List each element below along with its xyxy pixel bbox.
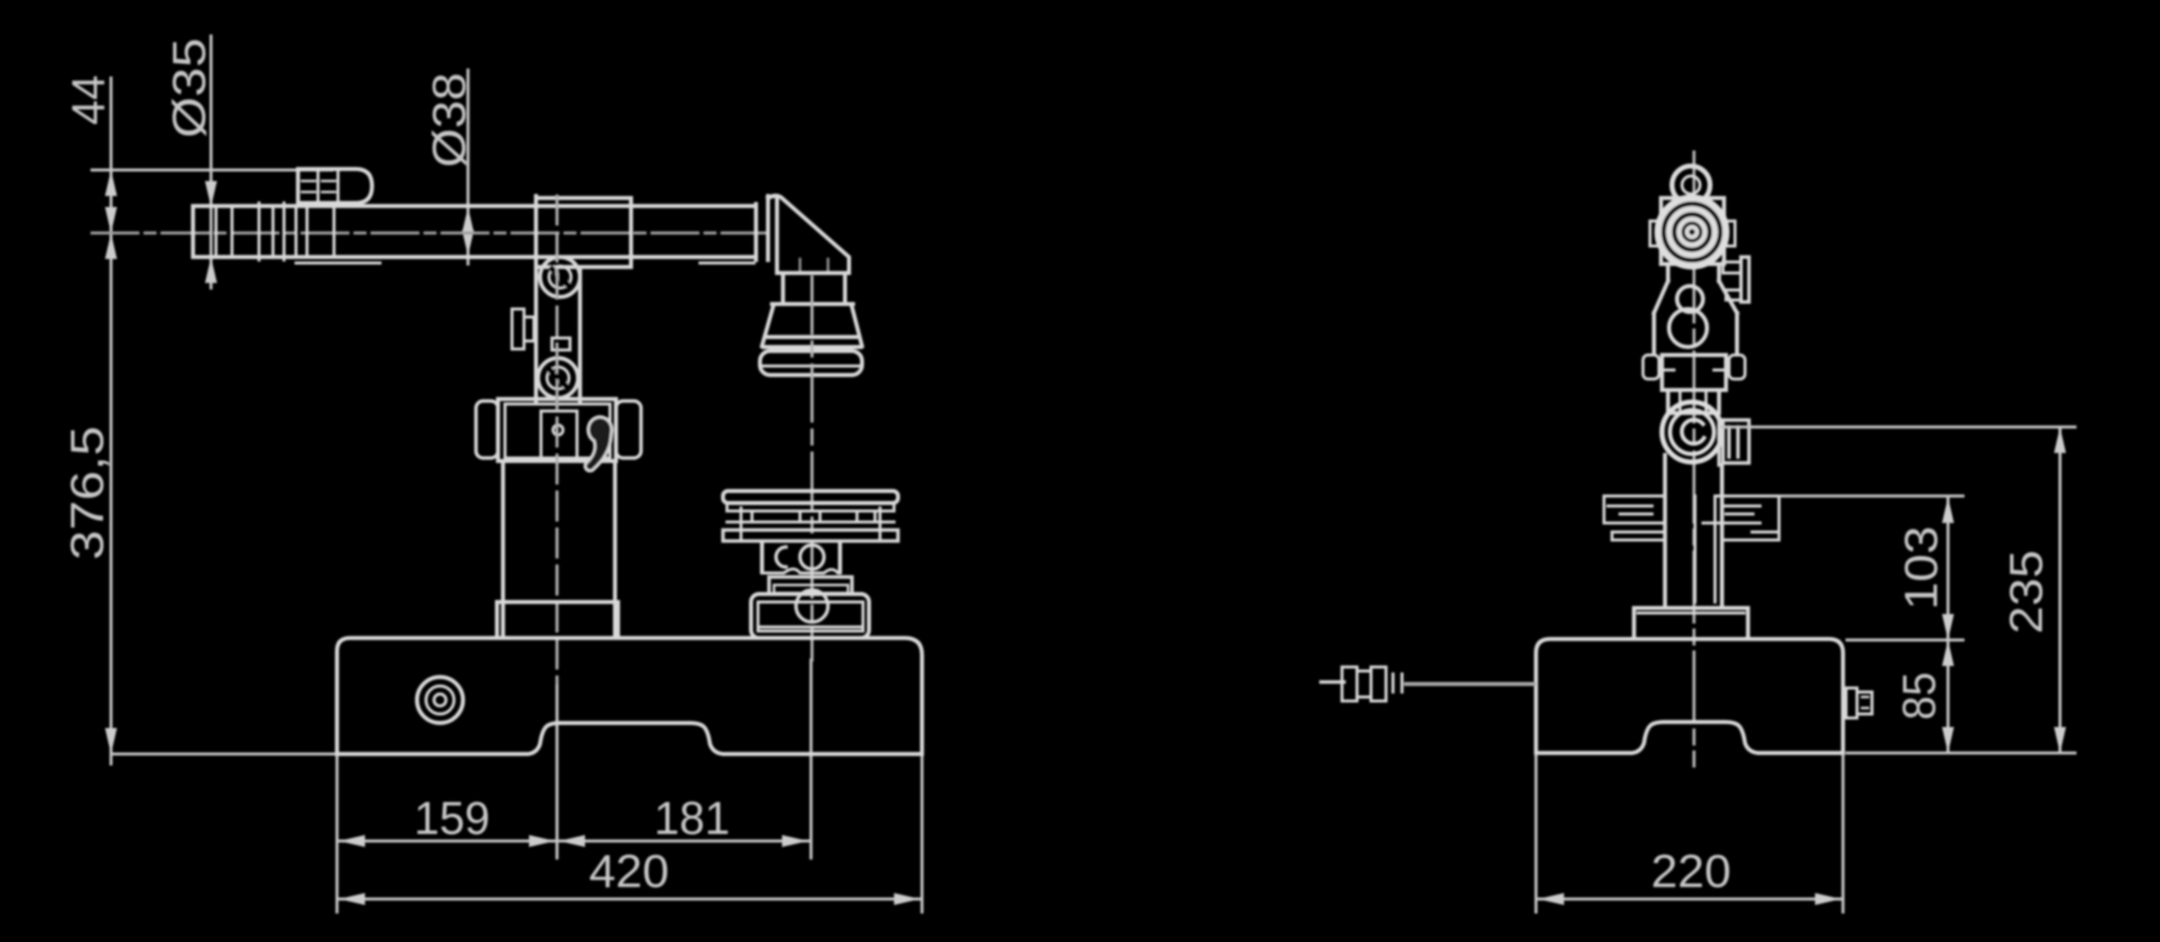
svg-text:376,5: 376,5 [61, 426, 113, 560]
svg-text:85: 85 [1893, 672, 1945, 720]
svg-text:420: 420 [589, 845, 669, 897]
svg-text:Ø38: Ø38 [423, 73, 475, 168]
svg-text:220: 220 [1651, 845, 1731, 897]
svg-text:159: 159 [414, 792, 490, 844]
svg-text:Ø35: Ø35 [163, 38, 215, 138]
svg-text:181: 181 [654, 792, 730, 844]
svg-text:235: 235 [2000, 550, 2052, 634]
svg-text:103: 103 [1895, 526, 1947, 610]
svg-text:44: 44 [62, 75, 114, 125]
